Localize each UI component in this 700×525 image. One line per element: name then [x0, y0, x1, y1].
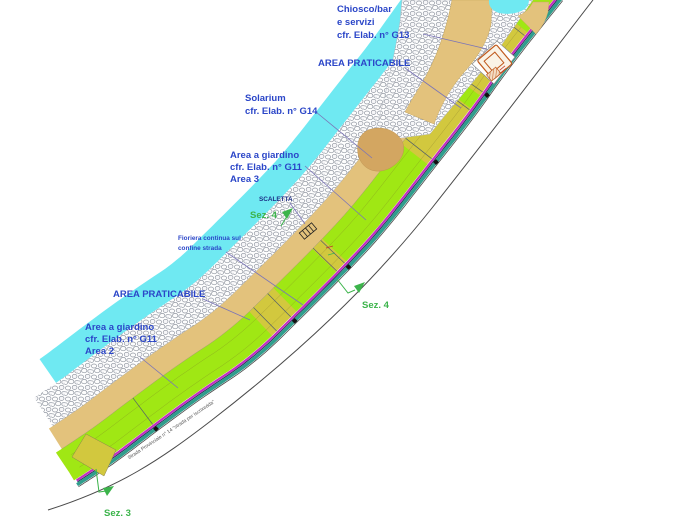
label-area-praticabile-bottom: AREA PRATICABILE — [113, 289, 205, 300]
site-plan-canvas: Chiosco/bar e servizi cfr. Elab. n° G13 … — [0, 0, 700, 525]
label-scaletta: SCALETTA — [259, 196, 293, 203]
label-sez3: Sez. 3 — [104, 508, 131, 519]
label-fioriera-line1: Fioriera continua sul — [178, 235, 241, 242]
label-chiosco-line1: Chiosco/bar — [337, 4, 392, 15]
label-giardino3-line2: cfr. Elab. n° G11 — [230, 162, 303, 173]
label-chiosco-line2: e servizi — [337, 17, 375, 28]
label-solarium-line2: cfr. Elab. n° G14 — [245, 106, 318, 117]
label-fioriera-line2: confine strada — [178, 245, 222, 252]
label-chiosco-line3: cfr. Elab. n° G13 — [337, 30, 409, 41]
label-giardino2-line2: cfr. Elab. n° G11 — [85, 334, 158, 345]
section-marker-sez4-lower — [337, 279, 365, 293]
label-giardino3-line3: Area 3 — [230, 174, 259, 185]
label-giardino3-line1: Area a giardino — [230, 150, 299, 161]
label-sez4-upper: Sez. 4 — [250, 210, 278, 221]
label-area-praticabile-top: AREA PRATICABILE — [318, 58, 410, 69]
label-solarium-line1: Solarium — [245, 93, 286, 104]
label-sez4-lower: Sez. 4 — [362, 300, 390, 311]
site-plan-drawing: Chiosco/bar e servizi cfr. Elab. n° G13 … — [0, 0, 700, 525]
label-giardino2-line3: Area 2 — [85, 346, 114, 357]
label-giardino2-line1: Area a giardino — [85, 322, 154, 333]
